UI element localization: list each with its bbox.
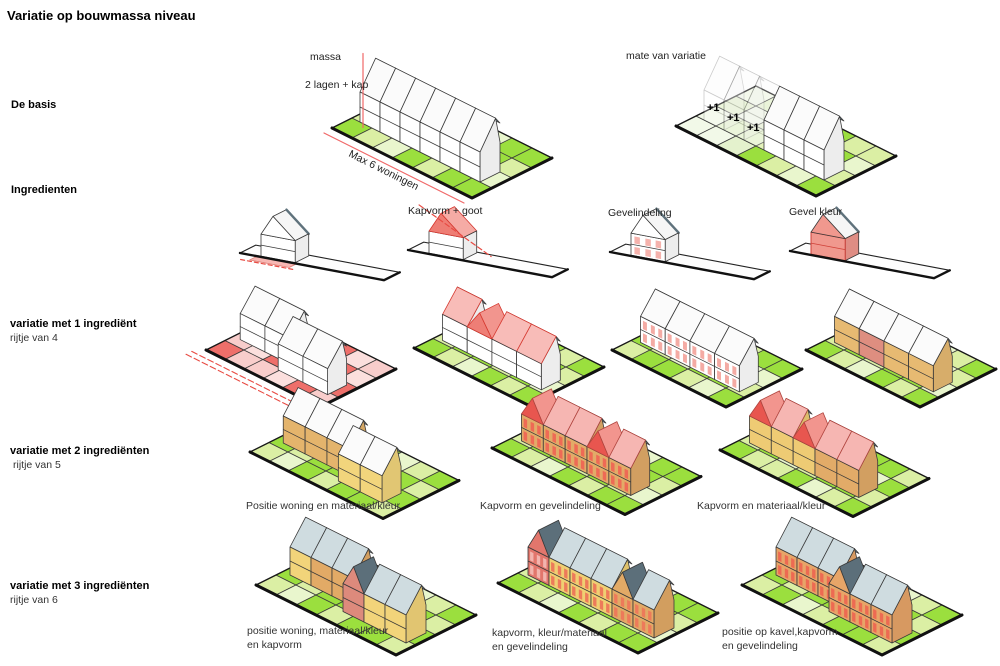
plus-one-label: +1 bbox=[707, 102, 720, 114]
canvas: { "title": "Variatie op bouwmassa niveau… bbox=[0, 0, 1000, 666]
diagram-r3-kapvorm bbox=[414, 287, 604, 405]
diagram-r4-kapvorm-gevelindeling bbox=[492, 389, 701, 515]
diagram-r3-positie bbox=[186, 286, 396, 418]
diagram-scene bbox=[0, 0, 1000, 666]
caption-line: en gevelindeling bbox=[722, 639, 838, 653]
diagram-ingredient-gevelindeling bbox=[610, 209, 770, 280]
caption-r4-positie: Positie woning en materiaal/kleur bbox=[246, 499, 400, 513]
annotation-gevel-kleur: Gevel kleur bbox=[789, 206, 842, 218]
diagram-r3-gevelindeling bbox=[612, 289, 802, 407]
diagram-de-basis bbox=[324, 54, 552, 204]
row-label-variatie-1: variatie met 1 ingrediënt bbox=[10, 318, 137, 330]
annotation-mate-van-variatie: mate van variatie bbox=[626, 50, 706, 62]
caption-r5-kavel: positie op kavel,kapvorm en gevelindelin… bbox=[722, 625, 838, 653]
caption-r5-positie: positie woning, materiaal/kleur en kapvo… bbox=[247, 624, 388, 652]
caption-line: kapvorm, kleur/materiaal bbox=[492, 626, 607, 640]
row-label-variatie-2: variatie met 2 ingrediënten bbox=[10, 445, 149, 457]
row-label-de-basis: De basis bbox=[11, 99, 56, 111]
plus-one-label: +1 bbox=[747, 122, 760, 134]
plus-one-label: +1 bbox=[727, 112, 740, 124]
annotation-kapvorm-goot: Kapvorm + goot bbox=[408, 205, 482, 217]
caption-r5-kapvorm: kapvorm, kleur/materiaal en gevelindelin… bbox=[492, 626, 607, 654]
diagram-mate-van-variatie bbox=[676, 56, 896, 196]
row-sublabel-rijtje-4: rijtje van 4 bbox=[10, 332, 58, 344]
caption-line: en kapvorm bbox=[247, 638, 388, 652]
diagram-r3-gevel-kleur bbox=[806, 289, 996, 407]
diagram-ingredient-gevel-kleur bbox=[790, 208, 950, 279]
annotation-lagen: 2 lagen + kap bbox=[305, 79, 368, 91]
diagram-r4-kapvorm-materiaal bbox=[720, 391, 929, 517]
caption-r4-kapvorm-materiaal: Kapvorm en materiaal/kleur bbox=[697, 499, 825, 513]
page-title: Variatie op bouwmassa niveau bbox=[7, 8, 196, 23]
row-label-variatie-3: variatie met 3 ingrediënten bbox=[10, 580, 149, 592]
row-sublabel-rijtje-6: rijtje van 6 bbox=[10, 594, 58, 606]
caption-line: en gevelindeling bbox=[492, 640, 607, 654]
annotation-gevelindeling: Gevelindeling bbox=[608, 207, 672, 219]
diagram-ingredient-positie bbox=[240, 210, 400, 281]
annotation-massa: massa bbox=[310, 51, 341, 63]
row-sublabel-rijtje-5: rijtje van 5 bbox=[13, 459, 61, 471]
caption-line: positie woning, materiaal/kleur bbox=[247, 624, 388, 638]
caption-r4-kapvorm-gevel: Kapvorm en gevelindeling bbox=[480, 499, 601, 513]
caption-line: positie op kavel,kapvorm bbox=[722, 625, 838, 639]
row-label-ingredienten: Ingredienten bbox=[11, 184, 77, 196]
